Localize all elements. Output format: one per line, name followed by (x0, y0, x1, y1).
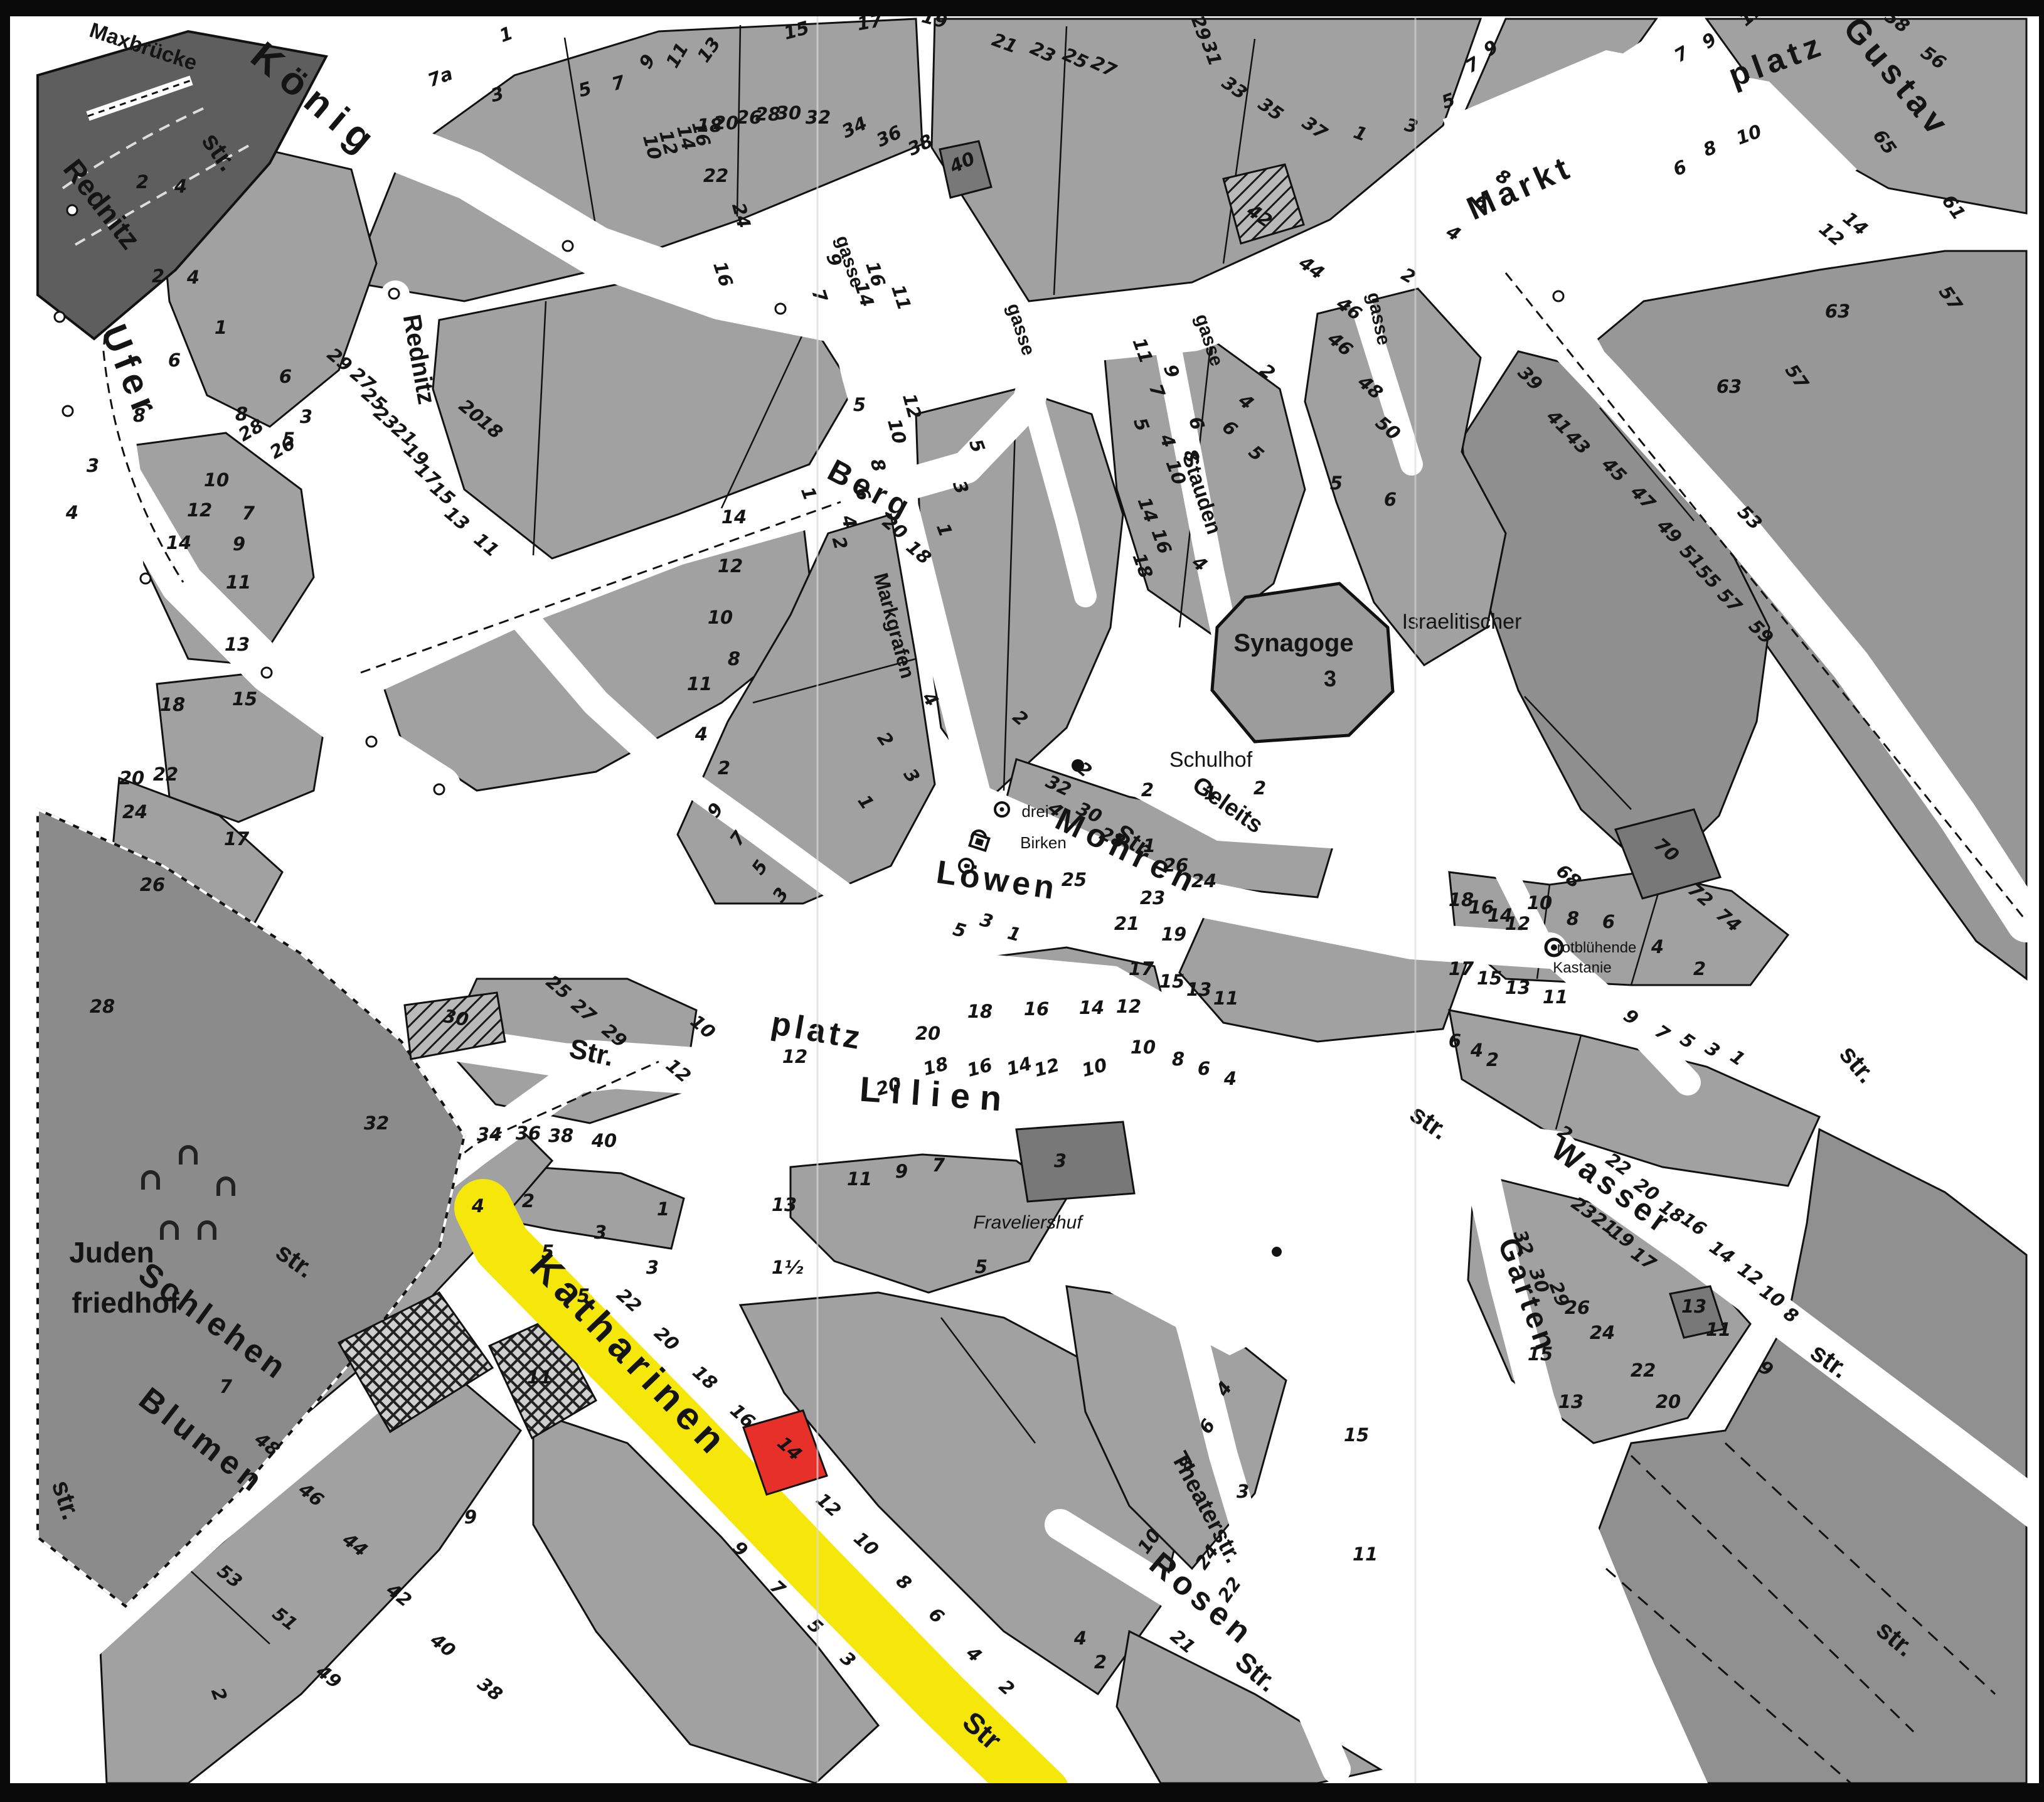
house-number: 12 (782, 1046, 807, 1067)
house-number: 26 (140, 874, 165, 895)
house-number: 6 (1449, 1030, 1461, 1052)
house-number: 12 (1116, 996, 1141, 1017)
house-number: 3 (594, 1222, 607, 1243)
house-number: 30 (442, 1005, 471, 1030)
house-number: 7 (242, 503, 255, 524)
house-number: 9 (464, 1506, 477, 1528)
house-number: 5 (853, 394, 866, 415)
house-number: 2 (1254, 777, 1266, 799)
house-number: 21 (1114, 913, 1139, 934)
house-number: 14 (166, 532, 191, 553)
house-number: 1½ (772, 1257, 804, 1278)
house-number: 20 (713, 112, 738, 134)
house-number: 6 (1602, 911, 1615, 932)
house-number: 15 (1477, 968, 1502, 989)
house-number: 4 (1073, 1628, 1087, 1649)
house-number: 5 (282, 429, 295, 450)
house-number: 16 (1024, 998, 1049, 1020)
house-number: 13 (1186, 979, 1211, 1000)
house-number: 1 (657, 1198, 669, 1220)
house-number: 8 (1172, 1048, 1184, 1070)
house-number: 2 (522, 1190, 535, 1212)
house-number: 23 (1140, 887, 1165, 909)
house-number: 19 (1161, 924, 1186, 945)
house-number: 10 (204, 469, 229, 491)
house-number: 8 (1567, 908, 1579, 929)
landmark-label: Birken (1020, 833, 1067, 852)
landmark-label: Fraveliershuf (973, 1212, 1083, 1233)
landmark-label: Schulhof (1169, 748, 1253, 772)
street-blumenstrasse-south (69, 1656, 75, 1757)
house-number: 15 (1159, 971, 1184, 992)
house-number: 11 (527, 1367, 552, 1388)
house-number: 11 (847, 1168, 872, 1190)
house-number: 13 (225, 634, 250, 655)
house-number: 5 (975, 1256, 987, 1277)
house-number: 4 (186, 267, 200, 288)
house-number: 11 (1543, 986, 1568, 1008)
house-number: 4 (695, 723, 708, 745)
house-number: 3 (87, 455, 99, 476)
house-number: 2 (1094, 1651, 1107, 1673)
house-number: 12 (187, 499, 212, 521)
house-number: 24 (1590, 1322, 1615, 1343)
house-number: 10 (708, 607, 733, 628)
house-number: 11 (1353, 1543, 1378, 1565)
house-number: 5 (1330, 472, 1343, 494)
house-number: 2 (1693, 958, 1706, 979)
house-number: 13 (1505, 977, 1530, 998)
house-number: 15 (232, 688, 257, 710)
house-number: 63 (1825, 301, 1850, 322)
dark-building-3 (1016, 1122, 1134, 1202)
house-number: 9 (895, 1161, 908, 1182)
house-number: 14 (1079, 997, 1104, 1018)
landmark-label: Kastanie (1553, 959, 1611, 976)
house-number: 13 (772, 1194, 797, 1215)
house-number: 36 (516, 1122, 541, 1144)
house-number: 24 (122, 801, 147, 823)
house-number: 9 (233, 533, 245, 555)
house-number: 14 (721, 506, 747, 528)
house-number: 40 (591, 1130, 617, 1151)
house-number: 3 (300, 406, 312, 427)
house-number: 8 (728, 648, 740, 669)
house-number: 22 (153, 764, 178, 785)
house-number: 11 (1213, 988, 1238, 1009)
house-number: 7 (932, 1154, 945, 1176)
house-number: 4 (1470, 1040, 1483, 1061)
house-number: 63 (1717, 376, 1742, 397)
house-number: 18 (160, 694, 185, 715)
dot-icon (1272, 1247, 1282, 1257)
house-number: 6 (279, 366, 292, 387)
city-map: 17a3579111315171921232527293133353713579… (0, 0, 2044, 1802)
synagogue-building (1212, 584, 1393, 742)
house-number: 17 (224, 828, 250, 850)
house-number: 10 (1527, 892, 1552, 914)
house-number: 6 (1198, 1058, 1210, 1079)
house-number: 2 (1486, 1049, 1499, 1070)
house-number: 4 (1651, 936, 1664, 957)
house-number: 10 (1131, 1037, 1156, 1058)
house-number: 2 (1141, 779, 1154, 801)
house-number: 3 (1237, 1481, 1249, 1502)
landmark-label: friedhof (72, 1286, 179, 1319)
house-number: 17 (1129, 958, 1154, 979)
house-number: 2 (718, 757, 730, 779)
landmark-label: Synagoge (1233, 629, 1353, 657)
house-number: 12 (1505, 913, 1530, 934)
house-number: 28 (90, 996, 115, 1017)
landmark-label: Israelitischer (1402, 610, 1522, 634)
house-number: 3 (646, 1257, 659, 1278)
house-number: 20 (119, 767, 144, 789)
landmark-label: rotblühende (1557, 939, 1637, 956)
city-map-svg: 17a3579111315171921232527293133353713579… (0, 0, 2044, 1802)
house-number: 15 (1344, 1424, 1369, 1446)
house-number: 3 (1054, 1150, 1067, 1171)
house-number: 18 (967, 1001, 993, 1022)
house-number: 13 (1558, 1391, 1584, 1412)
house-number: 11 (687, 673, 712, 695)
house-number: 22 (703, 165, 728, 186)
landmark-label: 3 (1324, 666, 1336, 691)
house-number: 12 (718, 555, 743, 577)
house-number: 11 (226, 572, 251, 593)
house-number: 30 (776, 102, 801, 124)
house-number: 13 (1681, 1296, 1706, 1317)
house-number: 17 (1449, 958, 1474, 979)
house-number: 20 (1656, 1391, 1681, 1412)
house-number: 25 (1062, 869, 1087, 890)
landmark-label: Juden (69, 1236, 154, 1269)
house-number: 4 (65, 502, 78, 523)
house-number: 11 (1706, 1319, 1731, 1340)
house-number: 20 (915, 1023, 940, 1044)
house-number: 1 (215, 317, 227, 338)
house-number: 4 (471, 1195, 484, 1217)
house-number: 38 (548, 1125, 573, 1146)
house-number: 22 (1631, 1360, 1656, 1381)
house-number: 2 (136, 171, 149, 193)
house-number: 7 (220, 1376, 233, 1397)
house-number: 4 (174, 176, 187, 197)
landmark-label: drei (1021, 802, 1048, 821)
house-number: 32 (364, 1112, 389, 1134)
house-number: 6 (168, 349, 181, 371)
house-number: 4 (1223, 1068, 1237, 1089)
house-number: 6 (1384, 489, 1397, 510)
house-number: 2 (152, 265, 164, 287)
house-number: 34 (477, 1124, 502, 1145)
house-number: 26 (1565, 1297, 1590, 1318)
